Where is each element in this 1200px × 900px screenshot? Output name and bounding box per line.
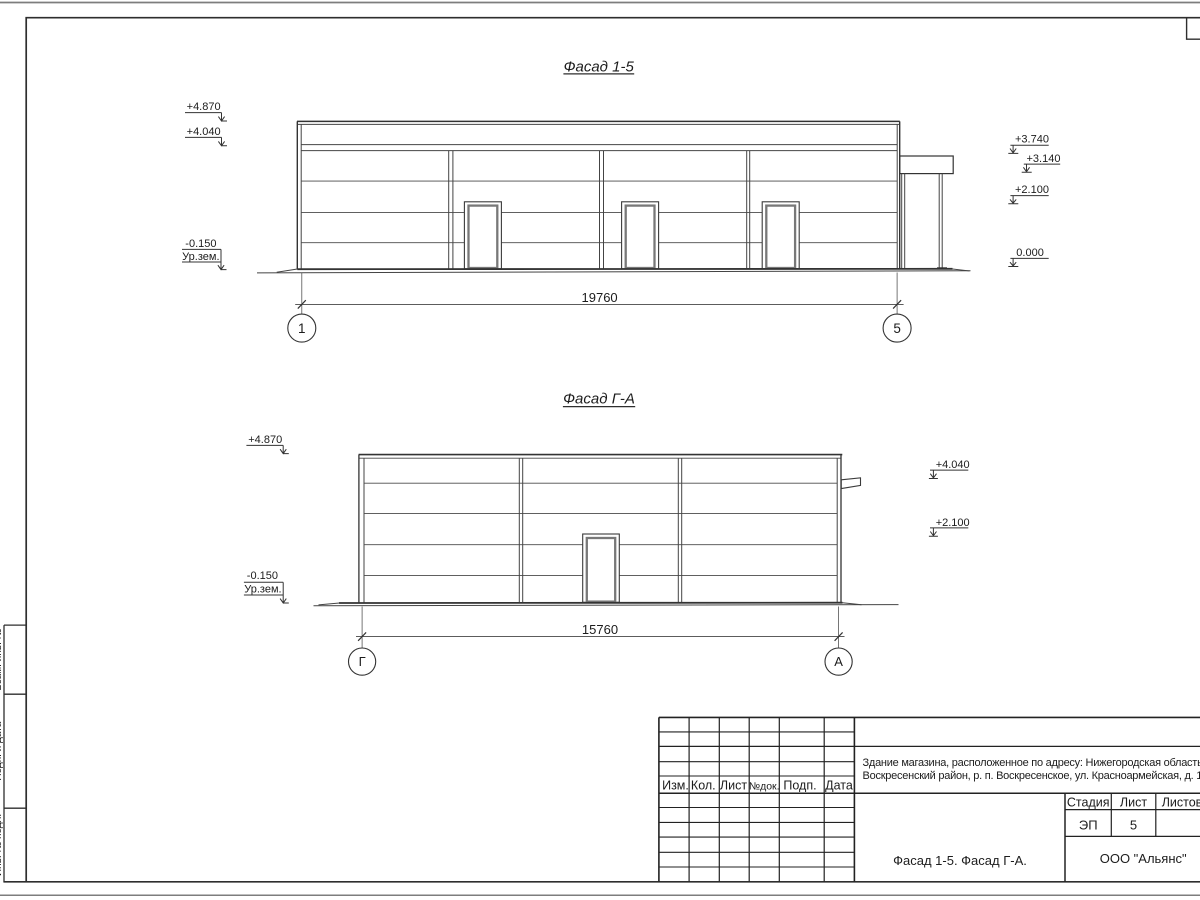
svg-text:+2.100: +2.100	[936, 517, 970, 529]
svg-text:1: 1	[298, 321, 306, 336]
svg-text:Здание магазина, расположенное: Здание магазина, расположенное по адресу…	[863, 757, 1200, 769]
svg-text:5: 5	[1130, 818, 1137, 833]
svg-text:Воскресенский район, р. п. Вос: Воскресенский район, р. п. Воскресенское…	[863, 770, 1200, 782]
svg-text:15760: 15760	[582, 622, 618, 637]
svg-text:+4.040: +4.040	[936, 459, 970, 471]
svg-text:Фасад Г-А: Фасад Г-А	[563, 391, 635, 408]
svg-text:Инв. № подл.: Инв. № подл.	[0, 814, 4, 876]
svg-text:Ур.зем.: Ур.зем.	[244, 583, 281, 595]
svg-text:+4.870: +4.870	[248, 434, 282, 446]
svg-text:Листов: Листов	[1162, 796, 1200, 810]
svg-text:Изм.: Изм.	[662, 779, 689, 793]
svg-text:Фасад 1-5: Фасад 1-5	[564, 58, 635, 75]
svg-text:Взам. инв. №: Взам. инв. №	[0, 628, 4, 690]
svg-text:Г: Г	[359, 654, 366, 669]
svg-text:ООО "Альянс": ООО "Альянс"	[1100, 851, 1187, 866]
svg-text:Подп.: Подп.	[783, 779, 816, 793]
svg-text:Дата: Дата	[825, 779, 853, 793]
svg-text:А: А	[834, 654, 843, 669]
svg-text:+3.140: +3.140	[1027, 153, 1061, 165]
svg-text:Стадия: Стадия	[1067, 796, 1110, 810]
svg-text:+2.100: +2.100	[1015, 184, 1049, 196]
svg-text:+4.870: +4.870	[187, 101, 221, 113]
svg-text:Подп. и дата: Подп. и дата	[0, 721, 4, 780]
svg-text:№док.: №док.	[749, 780, 780, 792]
svg-text:+4.040: +4.040	[187, 126, 221, 138]
svg-text:-0.150: -0.150	[247, 570, 278, 582]
svg-text:5: 5	[893, 321, 901, 336]
svg-text:19760: 19760	[582, 290, 618, 305]
svg-text:Фасад 1-5. Фасад Г-А.: Фасад 1-5. Фасад Г-А.	[893, 853, 1027, 868]
svg-text:Кол.: Кол.	[691, 779, 716, 793]
svg-text:0.000: 0.000	[1016, 247, 1044, 259]
svg-text:Лист: Лист	[720, 779, 747, 793]
svg-text:-0.150: -0.150	[185, 238, 216, 250]
svg-text:Ур.зем.: Ур.зем.	[182, 251, 219, 263]
svg-text:Лист: Лист	[1120, 796, 1147, 810]
svg-text:ЭП: ЭП	[1079, 818, 1098, 833]
svg-text:+3.740: +3.740	[1015, 133, 1049, 145]
